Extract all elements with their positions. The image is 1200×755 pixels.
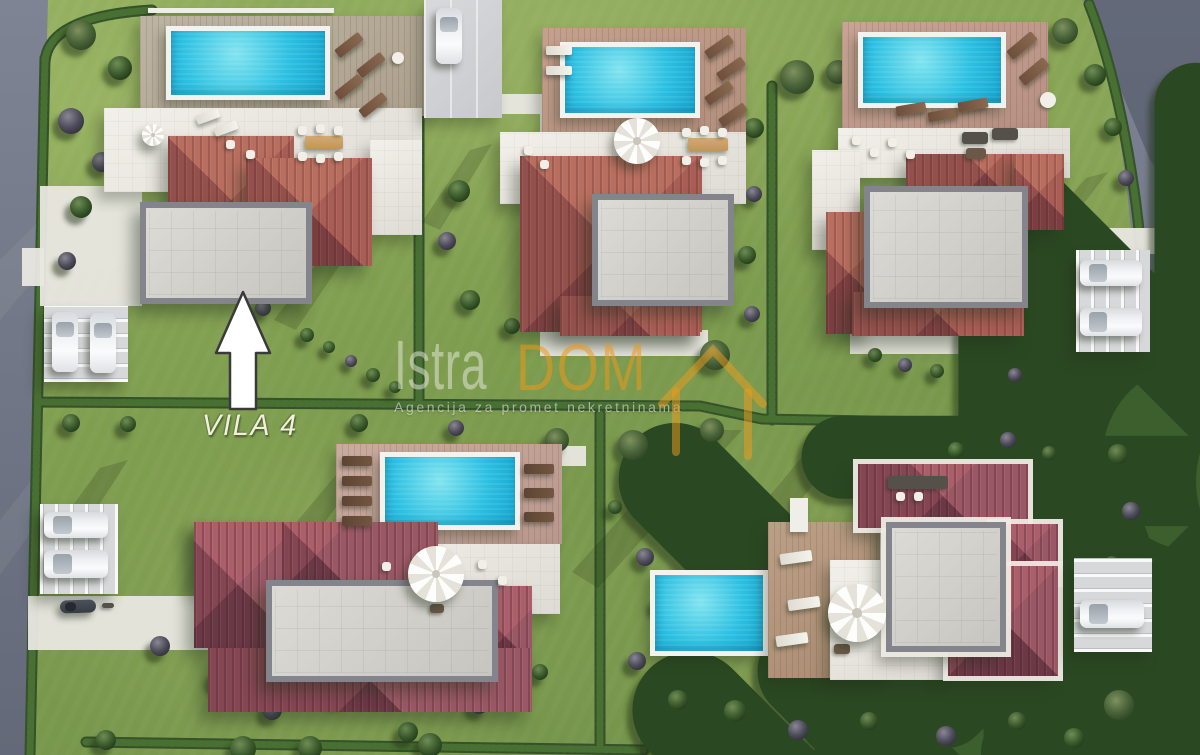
villa4-arrow-layer [0,0,1200,755]
site-plan-render: Istra DOM Agencija za promet nekretninam… [0,0,1200,755]
villa4-label: VILA 4 [191,409,309,443]
villa4-arrow [216,292,270,409]
